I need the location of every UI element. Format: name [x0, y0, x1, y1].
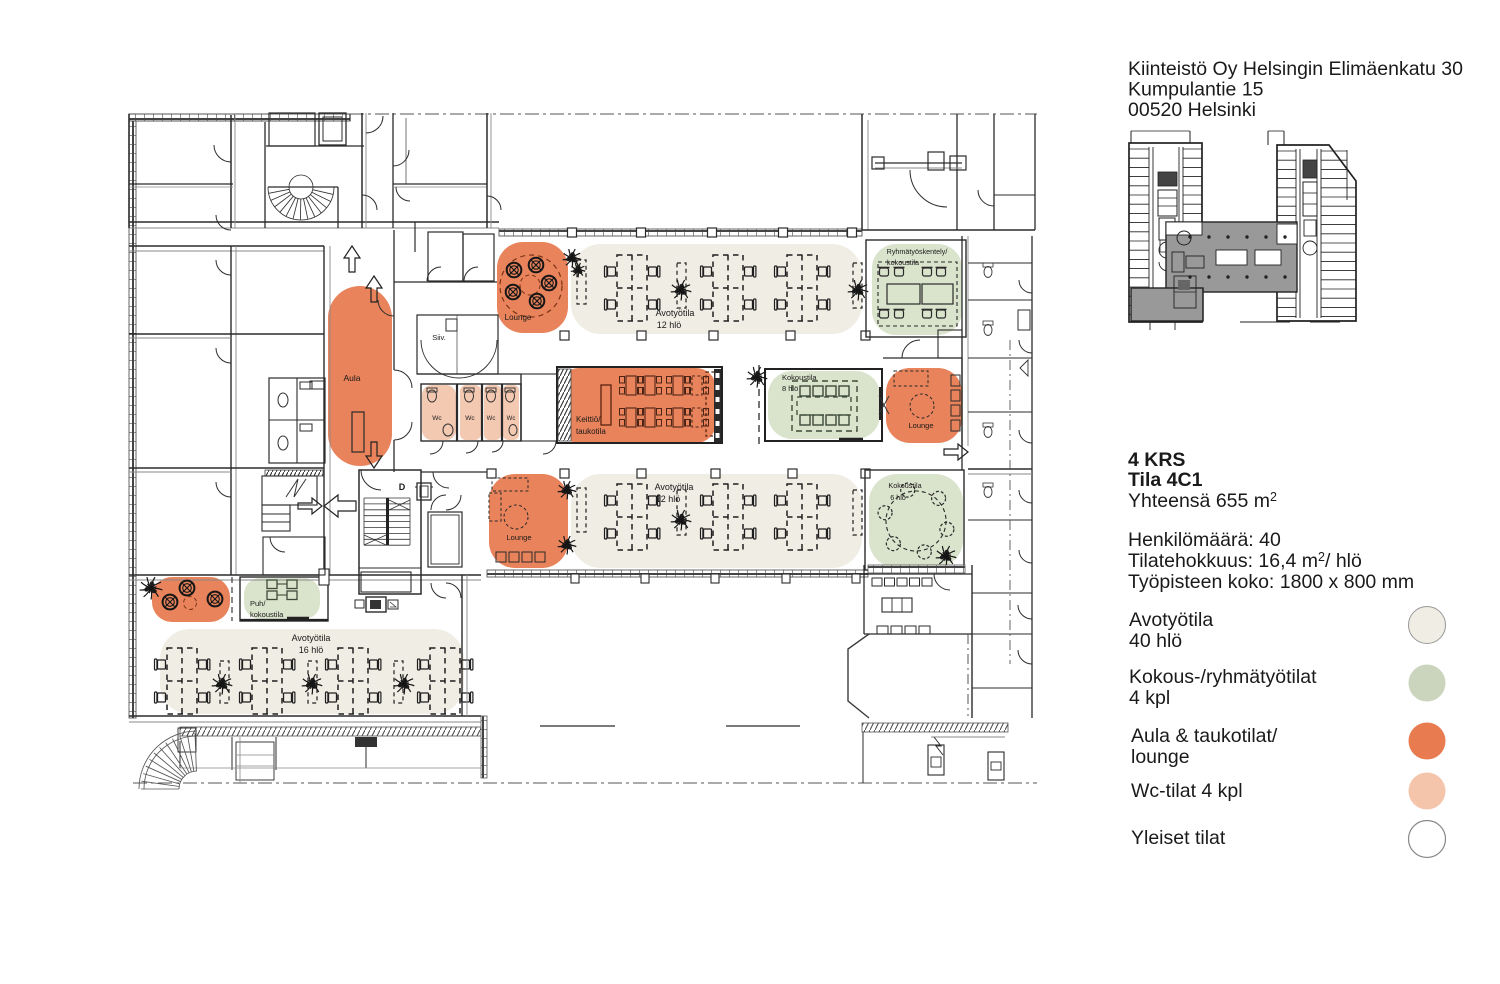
svg-text:kokoustila: kokoustila: [887, 258, 919, 267]
svg-text:Ryhmätyöskentely/: Ryhmätyöskentely/: [887, 247, 948, 256]
svg-text:Tilatehokkuus: 16,4 m2/ hlö: Tilatehokkuus: 16,4 m2/ hlö: [1128, 550, 1362, 572]
svg-text:Kokous-/ryhmätyötilat: Kokous-/ryhmätyötilat: [1129, 666, 1317, 688]
svg-text:Puh/: Puh/: [250, 599, 266, 608]
svg-text:4 kpl: 4 kpl: [1129, 687, 1170, 709]
svg-text:6 hlö: 6 hlö: [890, 493, 906, 502]
svg-text:Siiv.: Siiv.: [432, 333, 446, 342]
svg-text:Työpisteen koko: 1800 x 800 mm: Työpisteen koko: 1800 x 800 mm: [1128, 571, 1414, 593]
svg-text:Avotyötila: Avotyötila: [1129, 609, 1213, 631]
svg-text:4 KRS: 4 KRS: [1128, 449, 1185, 471]
svg-text:Avotyötila: Avotyötila: [292, 633, 331, 643]
svg-text:Keittiö/: Keittiö/: [576, 415, 601, 424]
svg-text:Kokoustila: Kokoustila: [888, 481, 921, 490]
svg-text:00520 Helsinki: 00520 Helsinki: [1128, 99, 1256, 121]
svg-text:Yleiset tilat: Yleiset tilat: [1131, 827, 1226, 849]
svg-text:kokoustila: kokoustila: [250, 610, 284, 619]
svg-text:8 hlö: 8 hlö: [782, 384, 798, 393]
svg-text:D: D: [399, 482, 406, 492]
svg-text:Avotyötila: Avotyötila: [655, 482, 694, 492]
svg-text:lounge: lounge: [1131, 746, 1190, 768]
svg-text:Henkilömäärä: 40: Henkilömäärä: 40: [1128, 529, 1281, 551]
svg-text:Lounge: Lounge: [505, 313, 532, 322]
svg-text:taukotila: taukotila: [576, 427, 606, 436]
svg-text:16 hlö: 16 hlö: [299, 645, 324, 655]
svg-text:40 hlö: 40 hlö: [1129, 630, 1182, 652]
svg-text:Kokoustila: Kokoustila: [782, 373, 817, 382]
svg-text:Kumpulantie 15: Kumpulantie 15: [1128, 79, 1264, 101]
svg-text:Wc: Wc: [465, 415, 475, 422]
svg-text:Lounge: Lounge: [908, 421, 933, 430]
svg-text:Wc: Wc: [432, 415, 442, 422]
svg-text:Tila 4C1: Tila 4C1: [1128, 469, 1203, 491]
svg-text:Yhteensä 655 m2: Yhteensä 655 m2: [1128, 490, 1277, 512]
svg-text:Aula & taukotilat/: Aula & taukotilat/: [1131, 725, 1278, 747]
svg-text:Wc: Wc: [487, 416, 496, 422]
svg-text:Aula: Aula: [343, 373, 360, 383]
svg-text:Avotyötila: Avotyötila: [656, 308, 695, 318]
svg-text:Wc-tilat 4 kpl: Wc-tilat 4 kpl: [1131, 780, 1243, 802]
svg-text:Lounge: Lounge: [506, 533, 531, 542]
svg-text:Kiinteistö Oy Helsingin Elimäe: Kiinteistö Oy Helsingin Elimäenkatu 30: [1128, 58, 1463, 80]
svg-text:Wc: Wc: [507, 416, 516, 422]
svg-text:12 hlö: 12 hlö: [657, 320, 682, 330]
